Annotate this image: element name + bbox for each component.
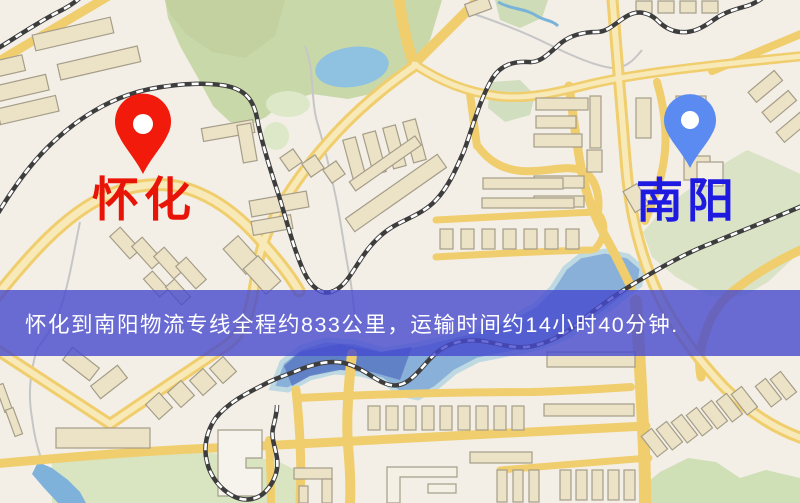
destination-city-label: 南阳	[636, 177, 738, 224]
route-info-text: 怀化到南阳物流专线全程约833公里，运输时间约14小时40分钟.	[0, 308, 679, 339]
route-info-banner: 怀化到南阳物流专线全程约833公里，运输时间约14小时40分钟.	[0, 290, 800, 356]
origin-city-label: 怀化	[92, 176, 196, 223]
map-screenshot: 怀化 南阳 怀化到南阳物流专线全程约833公里，运输时间约14小时40分钟.	[0, 0, 800, 503]
map-canvas	[0, 0, 800, 503]
